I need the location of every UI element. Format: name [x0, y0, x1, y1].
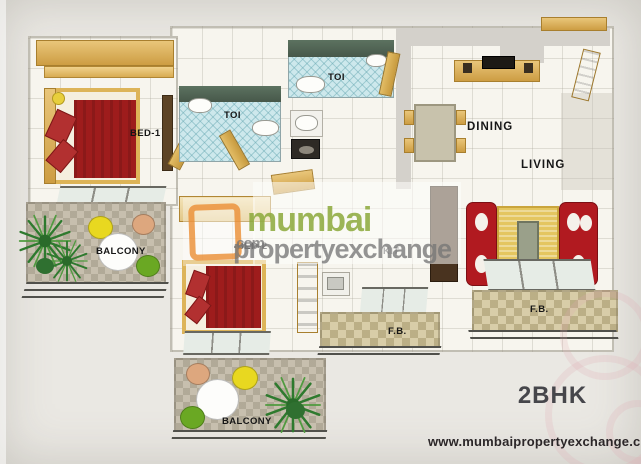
dining-table: [414, 104, 456, 162]
balcony2-bush: [286, 402, 305, 419]
plan-type-title: 2BHK: [505, 382, 600, 410]
kitchen-sink: [327, 277, 344, 290]
balcony1-stool-green: [136, 255, 160, 277]
fb2-label: F.B.: [530, 304, 549, 315]
balcony1-stool-tan: [132, 214, 155, 235]
tv-icon: [482, 56, 515, 69]
living-window: [483, 259, 595, 291]
kitchen-tall-unit: [297, 262, 318, 333]
balcony1-railing: [21, 282, 169, 299]
living-right-shade: [561, 93, 613, 190]
fb1-label: F.B.: [388, 326, 407, 337]
bed1-lamp: [52, 92, 65, 105]
toi2-toilet: [296, 76, 325, 93]
bed1-label: BED-1: [130, 128, 161, 139]
dining-chair: [456, 110, 466, 125]
watermark-brand: mumbai: [247, 203, 371, 237]
toi1-toilet: [252, 120, 279, 136]
bed1-wardrobe: [36, 40, 174, 66]
bed1-wardrobe-front: [44, 66, 174, 78]
fb1-railing: [317, 346, 442, 359]
toi2-label: TOI: [328, 72, 345, 83]
toi1-washbasin: [188, 98, 212, 113]
dining-chair: [404, 138, 414, 153]
balcony2-stool-yellow: [232, 366, 258, 390]
center-table: [517, 221, 539, 261]
website-url: www.mumbaipropertyexchange.com: [428, 434, 636, 449]
bed2-blanket: [206, 266, 261, 328]
watermark-brand2-text: propertyexchange: [233, 236, 451, 263]
scan-edge: [0, 0, 6, 464]
bed2-window: [183, 331, 271, 355]
dining-label: DINING: [467, 121, 513, 133]
balcony2-label: BALCONY: [222, 416, 272, 427]
balcony1-bush: [36, 258, 54, 274]
balcony2-stool-green: [180, 406, 205, 429]
balcony1-label: BALCONY: [96, 246, 146, 257]
dining-chair: [456, 138, 466, 153]
watermark-tld: .com: [233, 236, 264, 251]
dining-chair: [404, 110, 414, 125]
tv-speaker: [463, 63, 472, 73]
floor-plan-canvas: BED-1 TOI TOI BED-2 KIT DINING LIVING BA…: [0, 0, 641, 464]
entrance-lintel: [541, 17, 607, 31]
fb1-planter: [320, 312, 440, 348]
wash-basin: [295, 115, 318, 131]
tv-speaker: [524, 63, 533, 73]
kitchen-window: [360, 287, 428, 314]
living-label: LIVING: [521, 159, 565, 171]
washing-machine: [291, 139, 320, 159]
bed1-blanket: [74, 100, 136, 178]
toi1-label: TOI: [224, 110, 241, 121]
